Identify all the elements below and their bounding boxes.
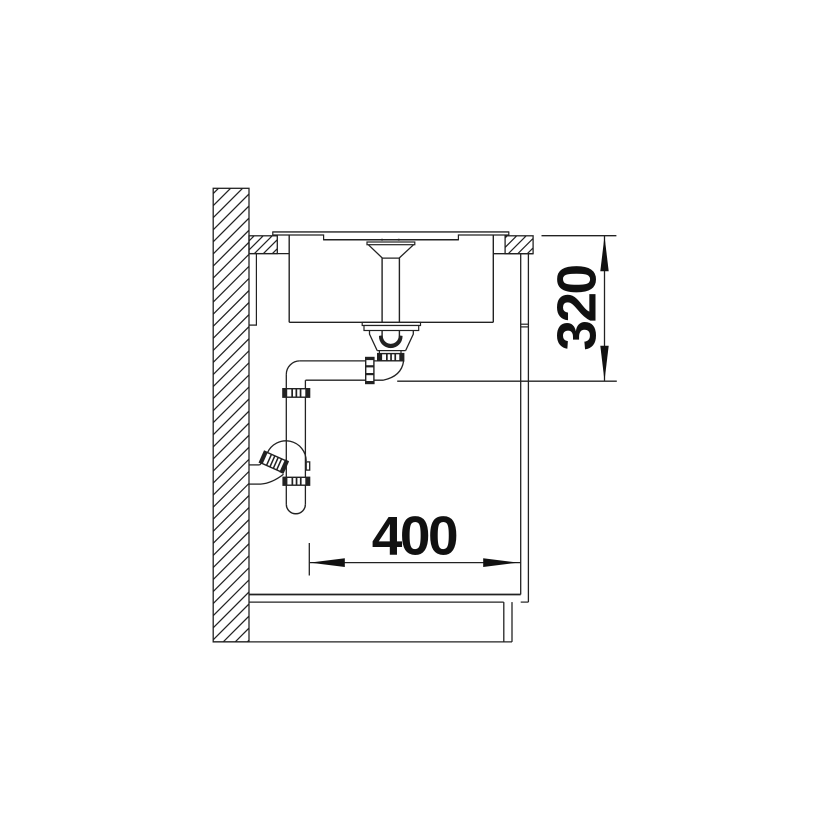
svg-text:320: 320 — [545, 265, 607, 350]
svg-text:400: 400 — [372, 504, 457, 566]
